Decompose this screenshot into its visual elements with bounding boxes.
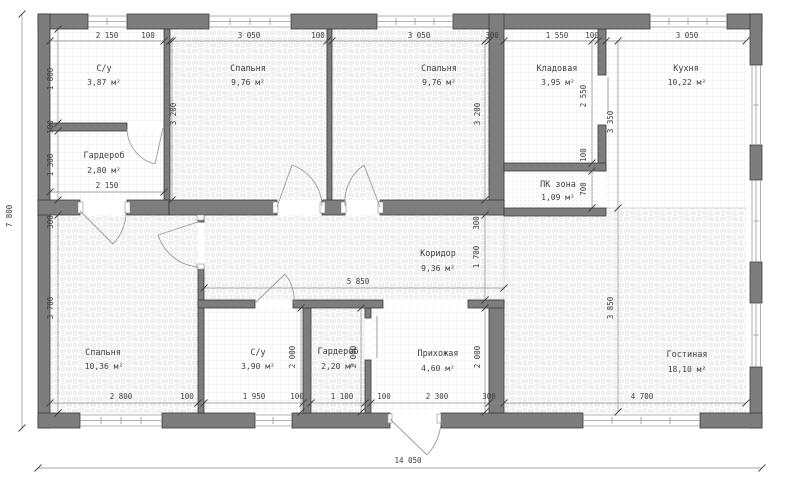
dim-label: 2 150 [96,181,119,190]
dim-label: 3 350 [606,110,615,133]
dim-label: 2 800 [110,392,133,401]
window-bottom-1 [80,415,162,426]
dim-label: 3 050 [408,31,431,40]
dim-label: 3 050 [676,31,699,40]
room-area: 4,60 м² [421,364,455,373]
dim-label: 2 150 [96,31,119,40]
floor-corridor [204,215,504,300]
room-area: 3,95 м² [541,78,575,87]
room-name: ПК зона [540,180,576,190]
dim-label: 3 850 [606,296,615,319]
dim-label: 3 200 [169,102,178,125]
floor-plan-canvas: 2 150 100 3 050 100 3 050 300 1 550 100 … [0,0,800,484]
dim-label: 2 000 [473,345,482,368]
room-name: С/у [96,64,111,74]
window-right-2 [752,180,761,262]
floor-bathroom-1 [50,29,164,123]
window-top-4 [650,16,727,27]
floor-bedroom-2 [332,29,489,200]
window-right-1 [752,65,761,145]
floor-living-room [504,208,746,413]
dim-label: 300 [485,31,499,40]
room-area: 9,76 м² [422,78,456,87]
room-area: 10,36 м² [85,362,124,371]
window-top-3 [377,16,453,27]
dim-label: 100 [377,392,391,401]
room-name: Гардероб [318,346,359,357]
room-name: Спальня [230,64,266,74]
dim-label: 100 [180,392,194,401]
room-area: 18,10 м² [668,365,707,374]
dim-label: 1 700 [472,245,481,268]
room-area: 1,09 м² [541,193,575,202]
dim-label: 100 [46,120,55,134]
room-name: Коридор [420,249,456,259]
room-name: Кладовая [537,64,578,74]
window-right-3 [752,303,761,367]
dim-label: 100 [579,148,588,162]
floor-kitchen [606,29,746,208]
room-area: 3,90 м² [241,362,275,371]
window-bottom-3 [583,415,700,426]
room-area: 2,80 м² [87,166,121,175]
room-name: Кухня [673,64,699,74]
dim-label: 3 700 [46,296,55,319]
dim-label: 1 300 [46,153,55,176]
dim-label: 1 950 [243,392,266,401]
dim-label-overall-height: 7 800 [5,204,14,227]
dim-label: 1 100 [331,392,354,401]
room-area: 3,87 м² [87,78,121,87]
dim-label-overall-width: 14 050 [394,456,422,465]
dim-label: 1 800 [46,67,55,90]
room-area: 10,22 м² [668,78,707,87]
dim-label: 2 300 [426,392,449,401]
room-area: 9,36 м² [421,264,455,273]
dim-label: 300 [472,216,481,230]
dim-label: 300 [482,392,496,401]
room-name: Спальня [421,64,457,74]
room-name: С/у [250,348,265,358]
door-entrance [388,414,441,455]
room-area: 2,20 м² [321,362,355,371]
window-top-2 [209,16,291,27]
dim-label: 700 [579,182,588,196]
dim-label: 100 [585,31,599,40]
dim-label: 1 550 [546,31,569,40]
window-top-1 [88,16,127,27]
room-name: Гостиная [667,350,708,360]
dim-label: 3 200 [473,102,482,125]
floor-bedroom-1 [170,29,327,200]
dim-label: 100 [141,31,155,40]
dim-label: 3 050 [238,31,261,40]
floor-bedroom-3 [50,215,198,413]
room-name: Спальня [85,348,121,358]
dim-label: 300 [46,215,55,229]
dim-label: 100 [311,31,325,40]
room-name: Прихожая [418,349,459,359]
window-bottom-2 [255,415,292,426]
dim-label: 5 850 [347,277,370,286]
floor-plan-page: 2 150 100 3 050 100 3 050 300 1 550 100 … [0,0,800,484]
room-name: Гардероб [84,150,125,161]
floor-hatches [50,29,746,413]
dim-label: 100 [290,392,304,401]
dim-label: 4 700 [631,392,654,401]
dim-label: 2 550 [579,84,588,107]
dim-label: 2 000 [288,345,297,368]
room-area: 9,76 м² [231,78,265,87]
